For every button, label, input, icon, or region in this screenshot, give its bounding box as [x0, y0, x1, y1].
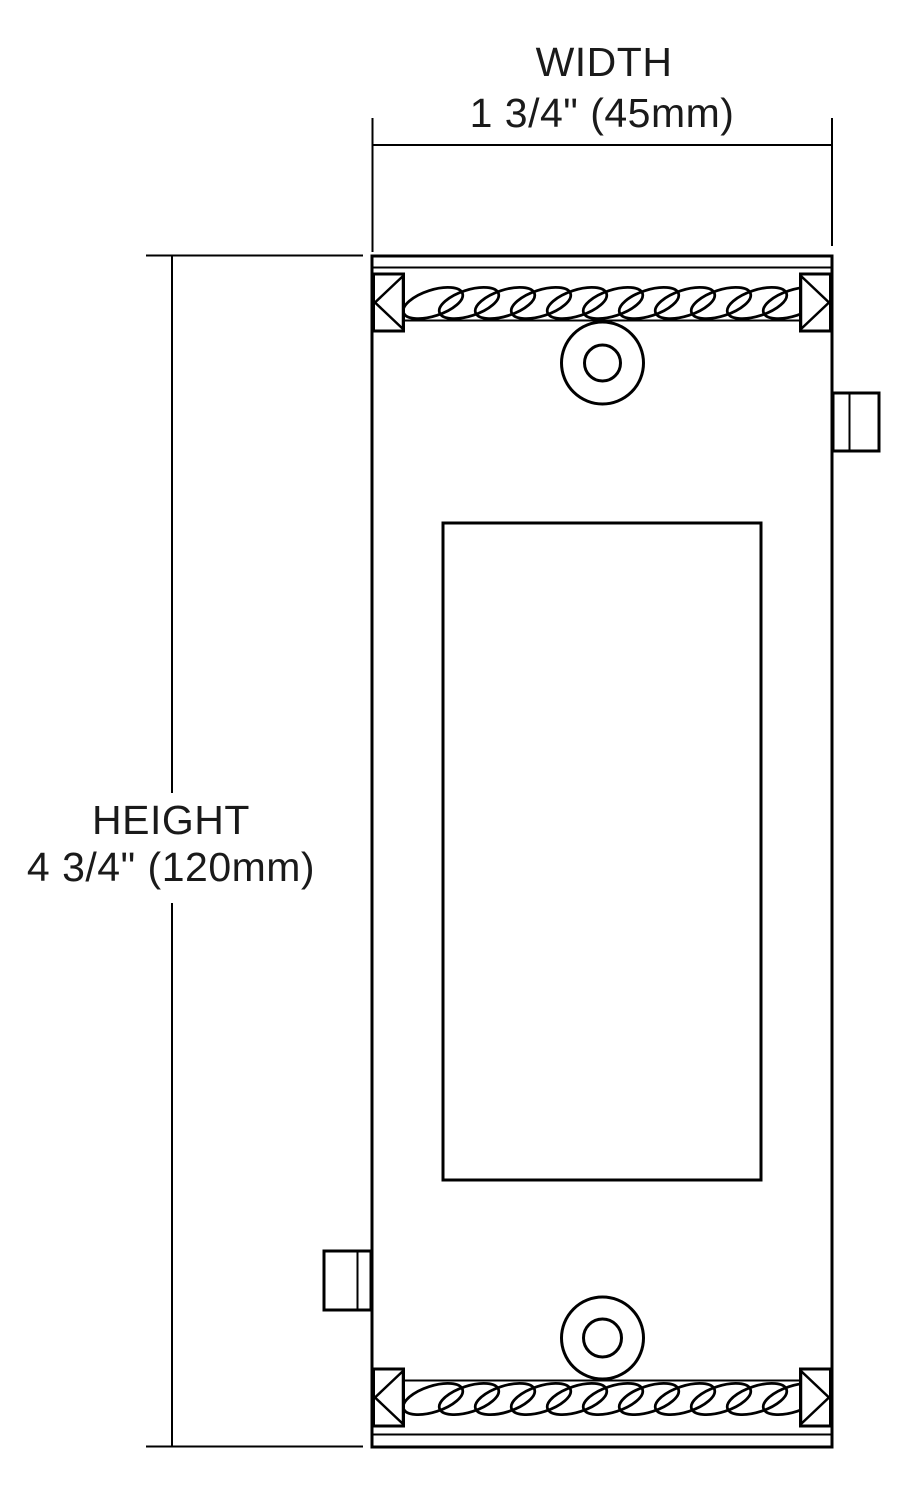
- fixture-outline: [372, 256, 832, 1447]
- grommet-inner-circle: [584, 1319, 622, 1357]
- width-dimension-lines: [373, 118, 833, 252]
- mounting-grommet-bottom: [562, 1297, 644, 1379]
- grommet-outer-circle: [562, 1297, 644, 1379]
- right-tab-outline: [833, 393, 879, 451]
- grommet-inner-circle: [585, 345, 621, 381]
- rope-molding-top: [400, 281, 827, 325]
- side-tab-left: [324, 1251, 371, 1310]
- dimension-diagram: WIDTH 1 3/4" (45mm) HEIGHT 4 3/4" (120mm…: [0, 0, 911, 1500]
- mounting-grommet-top: [562, 322, 644, 404]
- rope-molding-bottom: [400, 1377, 827, 1421]
- side-tab-right: [833, 393, 879, 451]
- fixture-drawing-svg: [0, 0, 911, 1500]
- fixture-body: [372, 256, 832, 1447]
- grommet-outer-circle: [562, 322, 644, 404]
- height-dimension-lines: [146, 256, 363, 1447]
- left-tab-outline: [324, 1251, 371, 1310]
- switch-opening: [443, 523, 761, 1180]
